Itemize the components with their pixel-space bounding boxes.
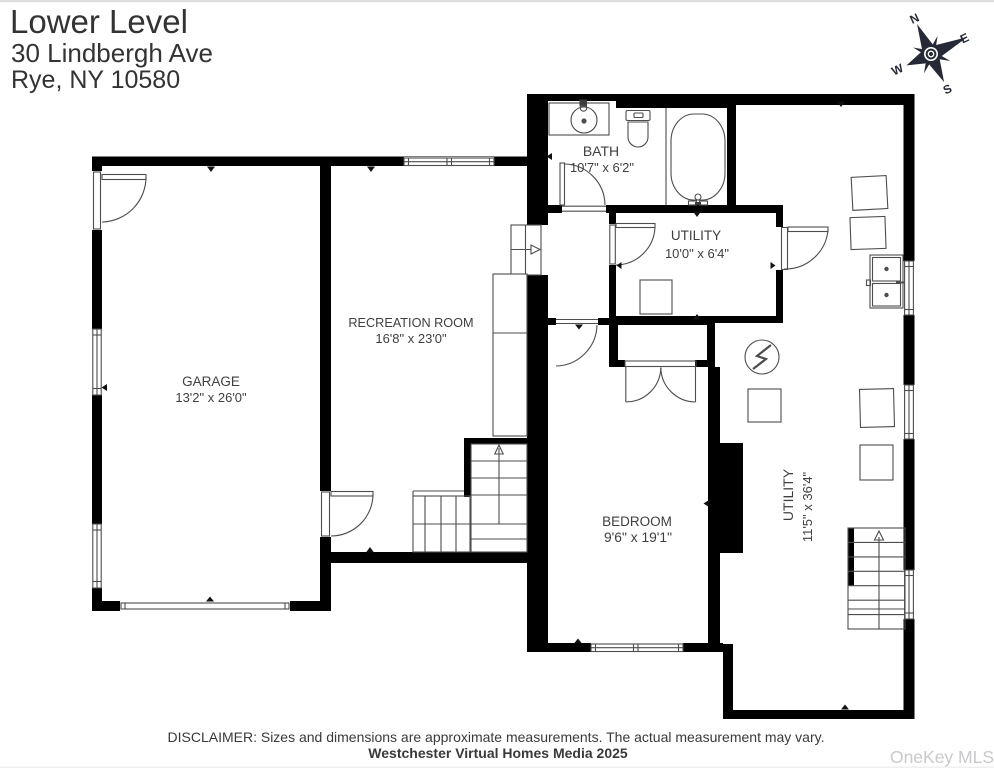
svg-text:Westchester Virtual Homes Medi: Westchester Virtual Homes Media 2025 xyxy=(368,745,628,761)
svg-text:30 Lindbergh Ave: 30 Lindbergh Ave xyxy=(11,38,213,68)
svg-text:UTILITY: UTILITY xyxy=(671,228,721,243)
svg-text:Lower Level: Lower Level xyxy=(10,3,188,40)
svg-text:11'5" x 36'4": 11'5" x 36'4" xyxy=(800,471,815,542)
svg-text:OneKey MLS: OneKey MLS xyxy=(890,747,994,767)
svg-text:9'6" x 19'1": 9'6" x 19'1" xyxy=(604,530,672,545)
svg-text:RECREATION ROOM: RECREATION ROOM xyxy=(348,316,473,330)
svg-text:16'8" x 23'0": 16'8" x 23'0" xyxy=(375,331,447,346)
svg-text:BEDROOM: BEDROOM xyxy=(602,514,672,529)
svg-text:GARAGE: GARAGE xyxy=(182,374,240,389)
svg-text:Rye, NY 10580: Rye, NY 10580 xyxy=(11,66,180,94)
svg-text:UTILITY: UTILITY xyxy=(780,468,796,521)
svg-text:BATH: BATH xyxy=(583,143,619,159)
svg-text:13'2" x 26'0": 13'2" x 26'0" xyxy=(175,390,247,405)
svg-text:10'0" x 6'4": 10'0" x 6'4" xyxy=(665,246,729,261)
svg-text:DISCLAIMER: Sizes and dimensio: DISCLAIMER: Sizes and dimensions are app… xyxy=(168,729,825,745)
svg-text:10'7" x 6'2": 10'7" x 6'2" xyxy=(570,160,634,175)
